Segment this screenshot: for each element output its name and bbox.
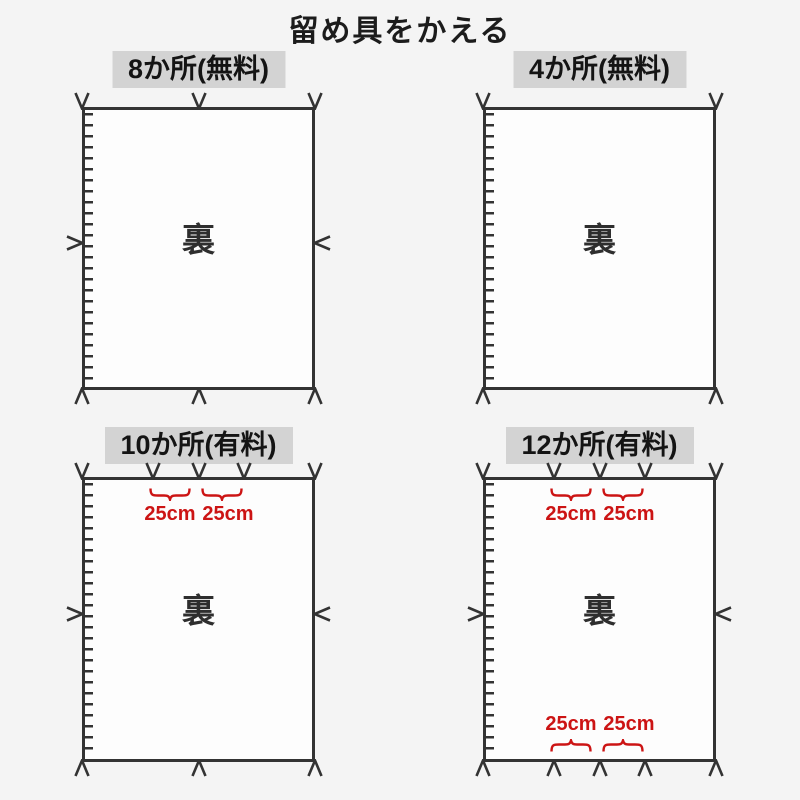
stitch-edge-ticks (85, 113, 93, 384)
back-side-label: 裏 (182, 584, 215, 632)
page-title: 留め具をかえる (0, 6, 800, 50)
fastener-marker-up-icon (475, 759, 491, 777)
back-side-label: 裏 (583, 213, 616, 261)
panel-10-locations-paid: 10か所(有料) 裏 25cm 25cm (82, 477, 315, 762)
panel-4-locations-free: 4か所(無料) 裏 (483, 107, 716, 390)
spacing-label: 25cm (545, 503, 596, 526)
panel-header: 8か所(無料) (112, 51, 285, 88)
spacing-label: 25cm (603, 503, 654, 526)
spacing-label: 25cm (202, 503, 253, 526)
stitch-edge-ticks (85, 483, 93, 756)
fastener-marker-down-icon (546, 462, 562, 480)
fastener-marker-right-icon (66, 606, 84, 622)
spacing-brace-icon (149, 487, 191, 501)
fastener-marker-down-icon (74, 462, 90, 480)
fastener-marker-up-icon (637, 759, 653, 777)
panel-12-locations-paid: 12か所(有料) 裏 25cm 25cm 25cm 25cm (483, 477, 716, 762)
spacing-brace-icon (602, 739, 644, 753)
back-side-label: 裏 (182, 213, 215, 261)
spacing-brace-icon (602, 487, 644, 501)
fastener-marker-down-icon (236, 462, 252, 480)
fastener-marker-up-icon (191, 759, 207, 777)
fastener-marker-up-icon (708, 759, 724, 777)
fastener-marker-right-icon (467, 606, 485, 622)
fastener-marker-left-icon (714, 606, 732, 622)
fastener-marker-up-icon (592, 759, 608, 777)
fastener-marker-down-icon (475, 92, 491, 110)
fastener-marker-left-icon (313, 606, 331, 622)
panel-header: 10か所(有料) (104, 427, 292, 464)
fastener-marker-up-icon (708, 387, 724, 405)
fastener-marker-down-icon (708, 92, 724, 110)
panel-header: 12か所(有料) (505, 427, 693, 464)
fastener-marker-down-icon (637, 462, 653, 480)
spacing-label: 25cm (545, 713, 596, 736)
fastener-marker-up-icon (307, 387, 323, 405)
fastener-marker-up-icon (74, 387, 90, 405)
fastener-marker-left-icon (313, 235, 331, 251)
fastener-options-diagram: 留め具をかえる 8か所(無料) 裏 4か所(無料) 裏 10か所(有料) 裏 (0, 0, 800, 800)
stitch-edge-ticks (486, 113, 494, 384)
spacing-brace-icon (550, 487, 592, 501)
stitch-edge-ticks (486, 483, 494, 756)
back-side-label: 裏 (583, 584, 616, 632)
fastener-marker-up-icon (191, 387, 207, 405)
fastener-marker-down-icon (307, 92, 323, 110)
spacing-brace-icon (550, 739, 592, 753)
fastener-marker-down-icon (74, 92, 90, 110)
spacing-label: 25cm (144, 503, 195, 526)
fastener-marker-down-icon (307, 462, 323, 480)
fastener-marker-down-icon (191, 462, 207, 480)
fastener-marker-down-icon (191, 92, 207, 110)
fastener-marker-down-icon (145, 462, 161, 480)
fastener-marker-down-icon (592, 462, 608, 480)
fastener-marker-down-icon (475, 462, 491, 480)
fastener-marker-up-icon (546, 759, 562, 777)
fastener-marker-down-icon (708, 462, 724, 480)
fastener-marker-up-icon (307, 759, 323, 777)
panel-header: 4か所(無料) (513, 51, 686, 88)
fastener-marker-up-icon (74, 759, 90, 777)
panel-8-locations-free: 8か所(無料) 裏 (82, 107, 315, 390)
fastener-marker-up-icon (475, 387, 491, 405)
fastener-marker-right-icon (66, 235, 84, 251)
spacing-label: 25cm (603, 713, 654, 736)
spacing-brace-icon (201, 487, 243, 501)
